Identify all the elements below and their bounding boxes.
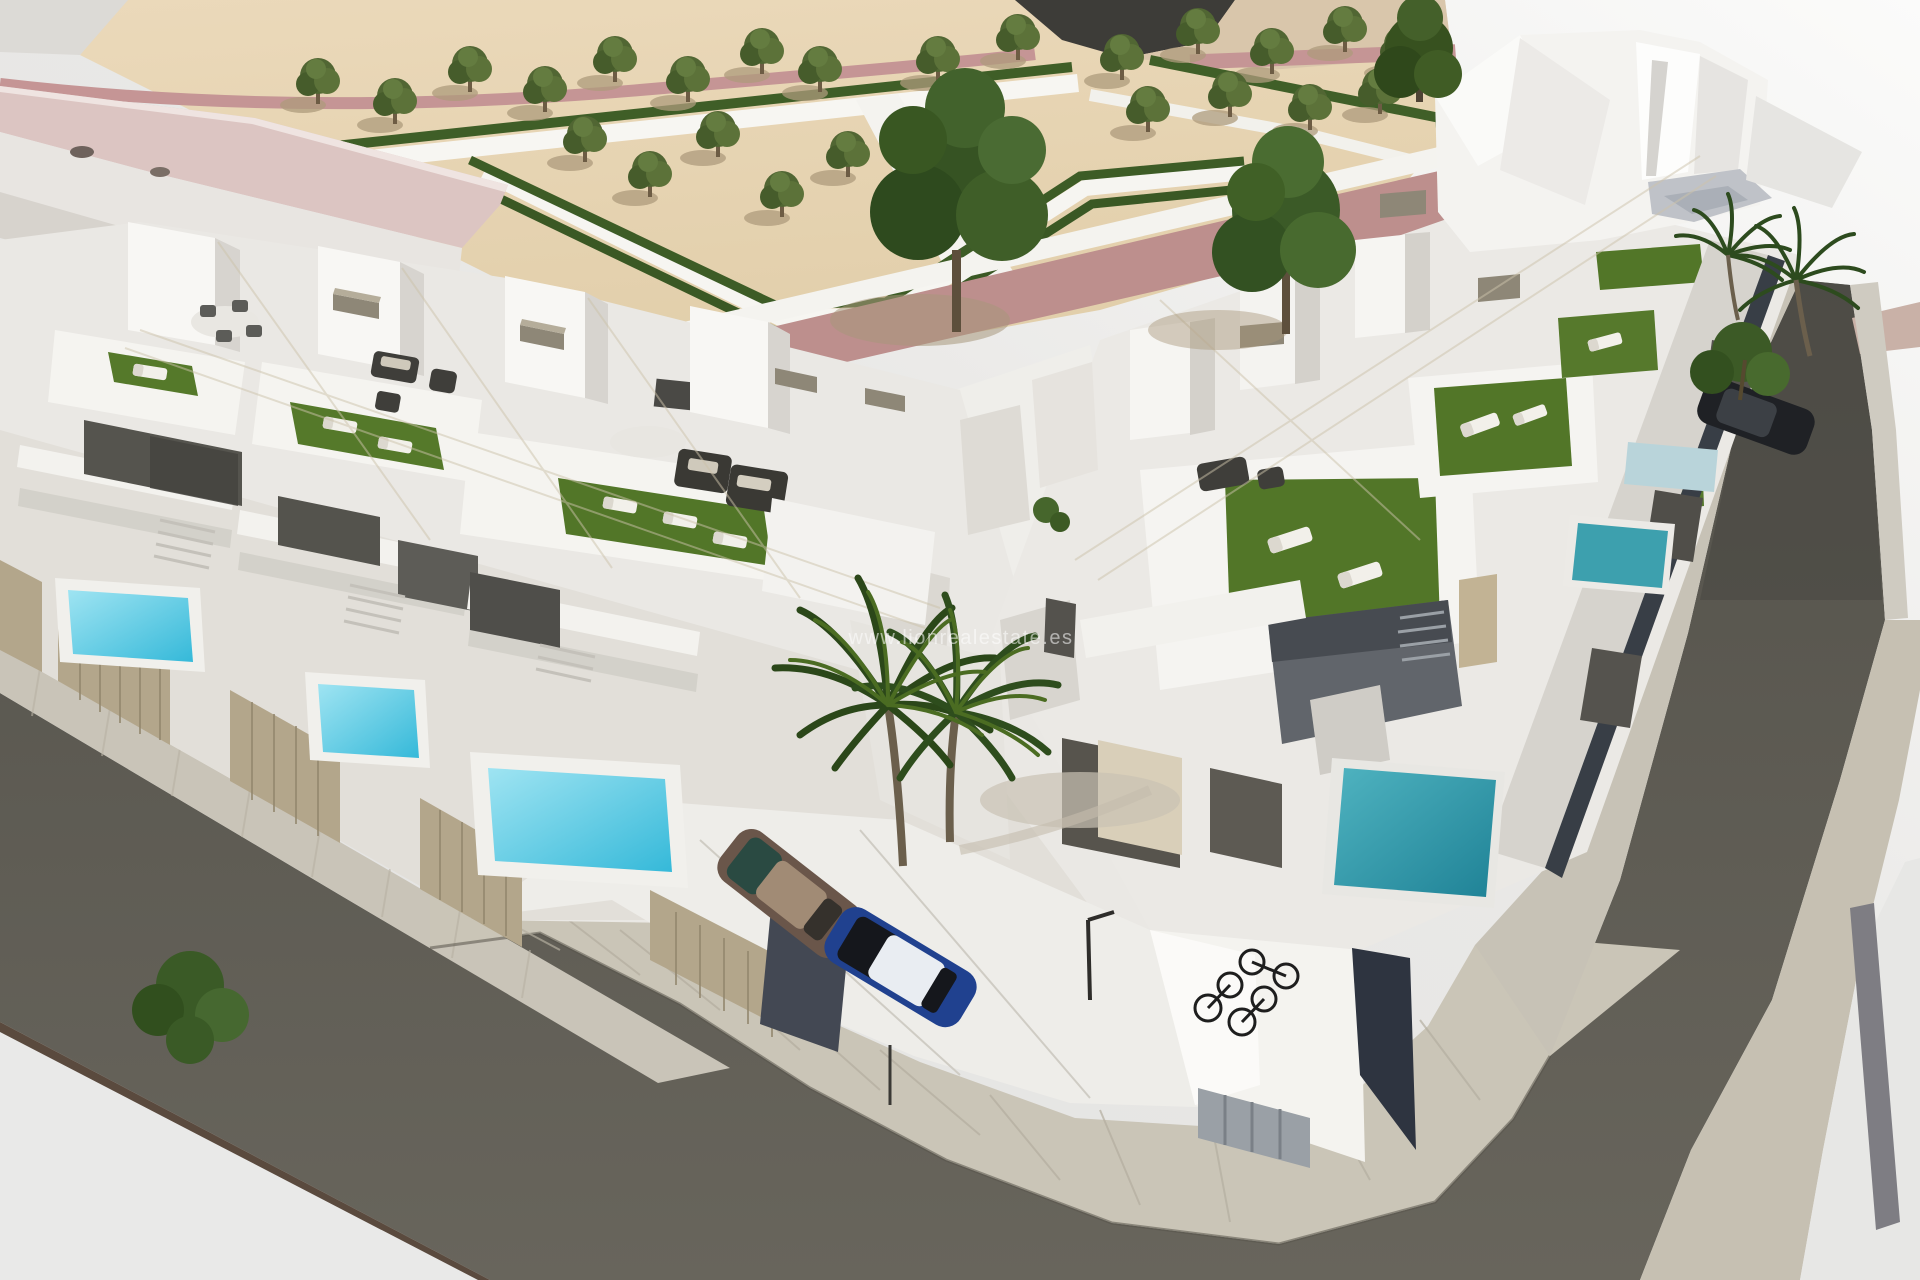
svg-text:www.lionrealestate.es: www.lionrealestate.es [848,627,1074,649]
